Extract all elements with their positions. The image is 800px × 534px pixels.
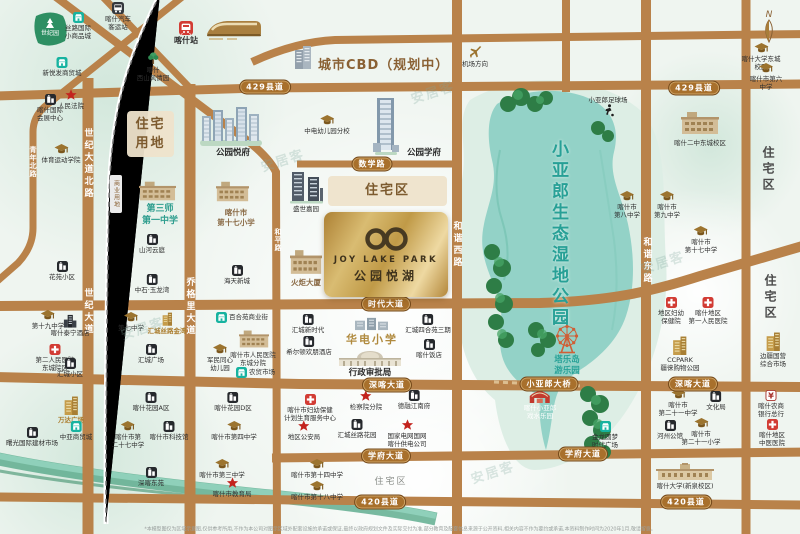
road-badge: 学府大道 bbox=[361, 449, 411, 464]
poi-label: 盛世嘉园 bbox=[293, 205, 319, 213]
map-label: 喀什市 第十七小学 bbox=[217, 207, 255, 228]
poi-label: 喀什饭店 bbox=[416, 351, 442, 359]
gold-building-icon bbox=[161, 312, 173, 326]
building-icon bbox=[424, 339, 435, 350]
poi-label: 体育运动学院 bbox=[42, 156, 81, 164]
shop-icon bbox=[57, 57, 68, 68]
graduation-cap-icon bbox=[215, 459, 229, 470]
building-icon bbox=[227, 392, 238, 403]
graduation-cap-icon bbox=[694, 418, 708, 429]
train-building bbox=[205, 13, 263, 41]
campus-building bbox=[656, 463, 714, 481]
block-building bbox=[139, 180, 176, 202]
plane-icon bbox=[469, 46, 482, 59]
building-icon bbox=[27, 427, 38, 438]
community-poi: 汇城广场 bbox=[138, 344, 164, 364]
road-badge: 数学路 bbox=[352, 157, 393, 172]
shop-icon bbox=[216, 312, 227, 323]
bank-icon: ¥ bbox=[766, 390, 777, 401]
block-building bbox=[290, 248, 322, 276]
poi-label: 小亚郎足球场 bbox=[589, 96, 628, 104]
graduation-cap-icon bbox=[124, 312, 138, 323]
building-icon bbox=[57, 261, 68, 272]
poi-label: 丝路国际 小商品城 bbox=[65, 24, 91, 41]
market-poi: 农贸市场 bbox=[236, 367, 275, 378]
water-park-gate-icon bbox=[529, 390, 551, 403]
shop-icon bbox=[71, 421, 82, 432]
graduation-cap-icon bbox=[310, 459, 324, 470]
community-poi: 希尔顿欢朋酒店 bbox=[286, 336, 332, 356]
block-building bbox=[239, 329, 269, 349]
community-poi: 河州公馆 bbox=[657, 420, 683, 440]
poi-label: 华电小学 bbox=[346, 333, 398, 347]
poi-label: 喀什花园D区 bbox=[214, 404, 252, 412]
map-label: 公园学府 bbox=[407, 147, 441, 159]
poi-label: 汇城新时代 bbox=[292, 326, 325, 334]
project-name-cn: 公园悦湖 bbox=[354, 267, 418, 284]
poi-label: 喀什地区 中医医院 bbox=[759, 431, 785, 448]
star-icon bbox=[226, 477, 238, 489]
school-poi: 喀什市第六中学 bbox=[749, 63, 783, 92]
poi-label: 喀什市第四中学 bbox=[211, 433, 257, 441]
poi-label: 喀什市教育局 bbox=[213, 490, 252, 498]
poi-label: 喀什市科技馆 bbox=[150, 433, 189, 441]
poi-label: 喀什市 第二十一小学 bbox=[682, 430, 721, 447]
graduation-cap-icon bbox=[754, 43, 768, 54]
poi-label: 中石·玉龙湾 bbox=[135, 286, 170, 294]
building-icon bbox=[145, 392, 156, 403]
star-icon bbox=[298, 420, 310, 432]
map-label: 盛世嘉园 bbox=[293, 204, 319, 213]
poi-label: 河州公馆 bbox=[657, 432, 683, 440]
building-icon bbox=[146, 274, 157, 285]
road-name: 和谐西路 bbox=[451, 221, 464, 269]
road-badge: 420县道 bbox=[660, 495, 712, 510]
road-badge: 429县道 bbox=[668, 81, 720, 96]
graduation-cap-icon bbox=[620, 191, 634, 202]
poi-label: 火炬大厦 bbox=[291, 278, 321, 288]
community-poi: 喀什国际 会展中心 bbox=[37, 94, 63, 123]
infinity-logo-icon bbox=[358, 226, 414, 253]
water-park-poi: 喀什小亚郎 戏水乐园 bbox=[524, 390, 557, 421]
school-poi: 第七中学 bbox=[118, 312, 144, 332]
school-poi: 体育运动学院 bbox=[42, 144, 81, 164]
school-poi: 喀什市第 二十七中学 bbox=[112, 421, 145, 450]
region-label: 住宅区 bbox=[760, 146, 777, 194]
poi-label: 汇城丝路金湾 bbox=[148, 327, 187, 335]
map-label: 华电小学 bbox=[346, 332, 398, 347]
market-poi: 中亚商贸城 bbox=[60, 421, 93, 441]
project-poi: 汇城丝路金湾 bbox=[148, 312, 187, 335]
poi-label: 百合苑商业街 bbox=[229, 313, 268, 321]
poi-label: 深喀东苑 bbox=[138, 479, 164, 487]
region-label: 住宅区 bbox=[374, 474, 407, 487]
government-poi: 国家电网国网 喀什供电公司 bbox=[388, 419, 427, 449]
road-name: 和平路 bbox=[273, 228, 283, 252]
building-icon bbox=[164, 421, 175, 432]
graduation-cap-icon bbox=[213, 344, 227, 355]
graduation-cap-icon bbox=[759, 63, 773, 74]
community-poi: 喀什花园A区 bbox=[133, 392, 170, 412]
park-poi: 喀什 西山风情园 bbox=[137, 52, 170, 83]
poi-label: 汇城四合苑三期 bbox=[405, 326, 451, 334]
building-icon bbox=[232, 265, 243, 276]
amusement-park-poi: 塔乐岛 游乐园 bbox=[554, 324, 580, 377]
region-label: 世纪园 bbox=[41, 28, 59, 37]
road-badge: 时代大道 bbox=[361, 297, 411, 312]
graduation-cap-icon bbox=[694, 226, 708, 237]
community-poi: 汇城小区 bbox=[57, 358, 83, 378]
poi-label: 喀什泰宁酒店 bbox=[51, 329, 90, 337]
map-label: 第三师 第一中学 bbox=[142, 203, 178, 227]
map-label: 喀什二中东城校区 bbox=[674, 138, 726, 147]
region-label: 城市CBD（规划中） bbox=[318, 54, 449, 73]
community-poi: 深喀东苑 bbox=[138, 467, 164, 487]
community-poi: 曙光国际建材市场 bbox=[6, 427, 58, 447]
poi-label: 曙光国际建材市场 bbox=[6, 439, 58, 447]
project-card: JOY LAKE PARK 公园悦湖 bbox=[324, 212, 448, 297]
community-poi: 汇城丝路花园 bbox=[338, 419, 377, 439]
block-building bbox=[216, 180, 249, 203]
poi-label: 喀什 西山风情园 bbox=[137, 66, 170, 83]
road-badge: 小亚郎大桥 bbox=[520, 377, 579, 392]
tower-building bbox=[368, 96, 402, 156]
location-map: JOY LAKE PARK 公园悦湖 N *本模型图仅为区域示意图,仅供参考所用… bbox=[0, 0, 800, 534]
graduation-cap-icon bbox=[310, 481, 324, 492]
poi-label: 喀什市第 二十七中学 bbox=[112, 433, 145, 450]
star-icon bbox=[65, 89, 77, 101]
school-poi: 中电幼儿园分校 bbox=[304, 115, 350, 135]
poi-label: 文化局 bbox=[706, 403, 726, 411]
poi-label: 德融江南府 bbox=[398, 402, 431, 410]
building-icon bbox=[65, 358, 76, 369]
building-icon bbox=[409, 390, 420, 401]
mall-poi: 边疆国营 综合市场 bbox=[760, 332, 786, 369]
poi-label: 第三师 第一中学 bbox=[142, 204, 178, 227]
school-poi: 喀什市第四中学 bbox=[211, 421, 257, 441]
road-badge: 420县道 bbox=[354, 495, 406, 510]
poi-label: 农贸市场 bbox=[249, 368, 275, 376]
market-poi: 丝路国际 小商品城 bbox=[65, 12, 91, 41]
poi-label: 喀什站 bbox=[174, 36, 198, 46]
ferris-wheel-icon bbox=[554, 324, 580, 354]
government-poi: 地区公安局 bbox=[288, 420, 321, 441]
community-poi: 花苑小区 bbox=[49, 261, 75, 281]
hospital-cross-icon bbox=[703, 297, 714, 308]
school-poi: 喀什市 第九中学 bbox=[654, 191, 680, 220]
poi-label: 喀什市 第二十一中学 bbox=[659, 401, 698, 418]
poi-label: 喀什二中东城校区 bbox=[674, 139, 726, 147]
poi-label: 喀什市 第九中学 bbox=[654, 203, 680, 220]
building-icon bbox=[711, 391, 722, 402]
map-label: 喀什市人民医院 东城分院 bbox=[230, 350, 276, 368]
graduation-cap-icon bbox=[320, 115, 334, 126]
poi-label: 喀什地区 第一人民医院 bbox=[689, 309, 728, 326]
road-name: 世纪大道北路 bbox=[82, 128, 95, 200]
poi-label: 汇城小区 bbox=[57, 370, 83, 378]
school-poi: 喀什市第十八中学 bbox=[291, 481, 343, 501]
poi-label: 喀什花园A区 bbox=[133, 404, 170, 412]
gold-building-icon bbox=[765, 332, 782, 351]
poi-label: 喀什国际 会展中心 bbox=[37, 106, 63, 123]
hotel-poi: 喀什泰宁酒店 bbox=[51, 314, 90, 337]
market-poi: 百合苑商业街 bbox=[216, 312, 268, 323]
poi-label: 喀什市 第八中学 bbox=[614, 203, 640, 220]
community-poi: 海天新城 bbox=[224, 265, 250, 285]
poi-label: 军民同心 幼儿园 bbox=[207, 356, 233, 373]
hospital-cross-icon bbox=[50, 344, 61, 355]
hospital-cross-icon bbox=[666, 297, 677, 308]
map-label: 喀什大学(新泉校区) bbox=[656, 481, 713, 490]
poi-label: 喀什农商银行总行 bbox=[757, 402, 786, 419]
shop-icon bbox=[600, 421, 611, 432]
twin-building bbox=[289, 170, 324, 204]
poi-label: 公园学府 bbox=[407, 148, 441, 159]
compass-north-icon: N bbox=[756, 8, 782, 48]
poi-label: 喀什市 第十七小学 bbox=[217, 208, 255, 228]
building-icon bbox=[423, 314, 434, 325]
mall-poi: CCPARK 疆徕购物公园 bbox=[661, 336, 700, 373]
poi-label: 第七中学 bbox=[118, 324, 144, 332]
school-poi: 喀什市 第二十一小学 bbox=[682, 418, 721, 447]
building-icon bbox=[304, 336, 315, 347]
bus-station-icon bbox=[112, 2, 124, 14]
tree-icon bbox=[148, 52, 159, 65]
graduation-cap-icon bbox=[227, 421, 241, 432]
stadium-poi: 小亚郎足球场 bbox=[589, 95, 628, 117]
poi-label: 喀什市第十四中学 bbox=[291, 471, 343, 479]
project-name-en: JOY LAKE PARK bbox=[334, 255, 438, 265]
poi-label: 地区公安局 bbox=[288, 433, 321, 441]
cluster-building bbox=[200, 103, 262, 147]
government-poi: 喀什市教育局 bbox=[213, 477, 252, 498]
graduation-cap-icon bbox=[121, 421, 135, 432]
hospital-poi: 喀什地区 中医医院 bbox=[759, 419, 785, 448]
road-badge: 深喀大道 bbox=[668, 377, 718, 392]
hospital-poi: 喀什地区 第一人民医院 bbox=[689, 297, 728, 326]
building-icon bbox=[146, 467, 157, 478]
poi-label: 塔乐岛 游乐园 bbox=[554, 355, 580, 377]
graduation-cap-icon bbox=[660, 191, 674, 202]
poi-label: 地区妇幼 保健院 bbox=[658, 309, 684, 326]
region-label: 住宅区 bbox=[762, 274, 779, 322]
train-station-poi: 喀什站 bbox=[174, 21, 198, 46]
poi-label: 喀什大学(新泉校区) bbox=[656, 482, 713, 490]
map-label: 公园悦府 bbox=[216, 147, 250, 159]
gold-building-icon bbox=[63, 396, 80, 415]
airport-direction-poi: 机场方向 bbox=[462, 46, 488, 68]
poi-label: 喀什市第十八中学 bbox=[291, 493, 343, 501]
area-label: 住宅 用地 bbox=[127, 111, 174, 157]
region-label: 小亚郎生态湿地公园 bbox=[546, 140, 571, 329]
row-building bbox=[354, 316, 390, 331]
road-badge: 429县道 bbox=[239, 80, 291, 95]
poi-label: 中电幼儿园分校 bbox=[304, 127, 350, 135]
community-poi: 喀什花园D区 bbox=[214, 392, 252, 412]
poi-label: 机场方向 bbox=[462, 60, 488, 68]
building-icon bbox=[352, 419, 363, 430]
map-label: 火炬大厦 bbox=[291, 277, 321, 288]
school-poi: 喀什市第十四中学 bbox=[291, 459, 343, 479]
road-badge: 学府大道 bbox=[558, 447, 608, 462]
community-poi: 汇城新时代 bbox=[292, 314, 325, 334]
poi-label: 喀什市 第十七中学 bbox=[685, 238, 718, 255]
poi-label: 喀什小亚郎 戏水乐园 bbox=[524, 404, 557, 421]
government-poi: 检察院分院 bbox=[350, 390, 383, 411]
bus-station-poi: 喀什汽车 客运站 bbox=[105, 2, 131, 32]
svg-text:N: N bbox=[766, 10, 773, 20]
poi-label: 中亚商贸城 bbox=[60, 433, 93, 441]
community-poi: 中石·玉龙湾 bbox=[135, 274, 170, 294]
community-poi: 山河云庭 bbox=[139, 234, 165, 254]
school-poi: 军民同心 幼儿园 bbox=[207, 344, 233, 373]
hospital-poi: 喀什市妇幼保健 计划生育服务中心 bbox=[284, 394, 336, 423]
graduation-cap-icon bbox=[54, 144, 68, 155]
school-poi: 喀什市 第八中学 bbox=[614, 191, 640, 220]
poi-label: 山河云庭 bbox=[139, 246, 165, 254]
poi-label: 公园悦府 bbox=[216, 148, 250, 159]
area-label: 商业用地 bbox=[110, 175, 122, 213]
community-poi: 喀什市科技馆 bbox=[150, 421, 189, 441]
hotel-building-icon bbox=[63, 314, 78, 328]
road-name: 和谐东路 bbox=[641, 237, 654, 285]
building-icon bbox=[303, 314, 314, 325]
hospital-cross-icon bbox=[305, 394, 316, 405]
poi-label: 汇城丝路花园 bbox=[338, 431, 377, 439]
poi-label: 国家电网国网 喀什供电公司 bbox=[388, 432, 427, 449]
building-icon bbox=[665, 420, 676, 431]
road-badge: 深喀大道 bbox=[362, 378, 412, 393]
bank-poi: ¥喀什农商银行总行 bbox=[757, 390, 786, 419]
road-name: 青年北路 bbox=[28, 146, 38, 178]
graybld-building bbox=[293, 45, 313, 69]
community-poi: 汇城四合苑三期 bbox=[405, 314, 451, 334]
building-icon bbox=[147, 234, 158, 245]
poi-label: 海天新城 bbox=[224, 277, 250, 285]
gold-building-icon bbox=[672, 336, 689, 355]
hospital-cross-icon bbox=[767, 419, 778, 430]
area-label: 住宅区 bbox=[328, 176, 447, 206]
community-poi: 文化局 bbox=[706, 391, 726, 411]
train-station-icon bbox=[179, 21, 193, 35]
football-player-icon bbox=[602, 104, 614, 117]
poi-label: CCPARK 疆徕购物公园 bbox=[661, 356, 700, 373]
dome-building bbox=[338, 349, 402, 367]
community-poi: 喀什饭店 bbox=[416, 339, 442, 359]
building-icon bbox=[146, 344, 157, 355]
block-building bbox=[681, 110, 719, 136]
hospital-poi: 地区妇幼 保健院 bbox=[658, 297, 684, 326]
poi-label: 汇城广场 bbox=[138, 356, 164, 364]
poi-label: 喀什市人民医院 东城分院 bbox=[230, 351, 276, 368]
poi-label: 喀什市第六中学 bbox=[749, 75, 783, 92]
building-icon bbox=[45, 94, 56, 105]
poi-label: 新悦发商贸城 bbox=[43, 69, 82, 77]
svg-text:¥: ¥ bbox=[768, 390, 774, 400]
poi-label: 边疆国营 综合市场 bbox=[760, 352, 786, 369]
shop-icon bbox=[236, 367, 247, 378]
poi-label: 花苑小区 bbox=[49, 273, 75, 281]
map-disclaimer: *本模型图仅为区域示意图,仅供参考所用,不作为本公司对图示区域外配套设施的承诺或… bbox=[72, 525, 728, 532]
school-poi: 喀什市 第十七中学 bbox=[685, 226, 718, 255]
poi-label: 喀什汽车 客运站 bbox=[105, 15, 131, 32]
poi-label: 希尔顿欢朋酒店 bbox=[286, 348, 332, 356]
poi-label: 检察院分院 bbox=[350, 403, 383, 411]
community-poi: 德融江南府 bbox=[398, 390, 431, 410]
star-icon bbox=[401, 419, 413, 431]
school-poi: 喀什市 第二十一中学 bbox=[659, 389, 698, 418]
shop-icon bbox=[73, 12, 84, 23]
market-poi: 新悦发商贸城 bbox=[43, 57, 82, 77]
